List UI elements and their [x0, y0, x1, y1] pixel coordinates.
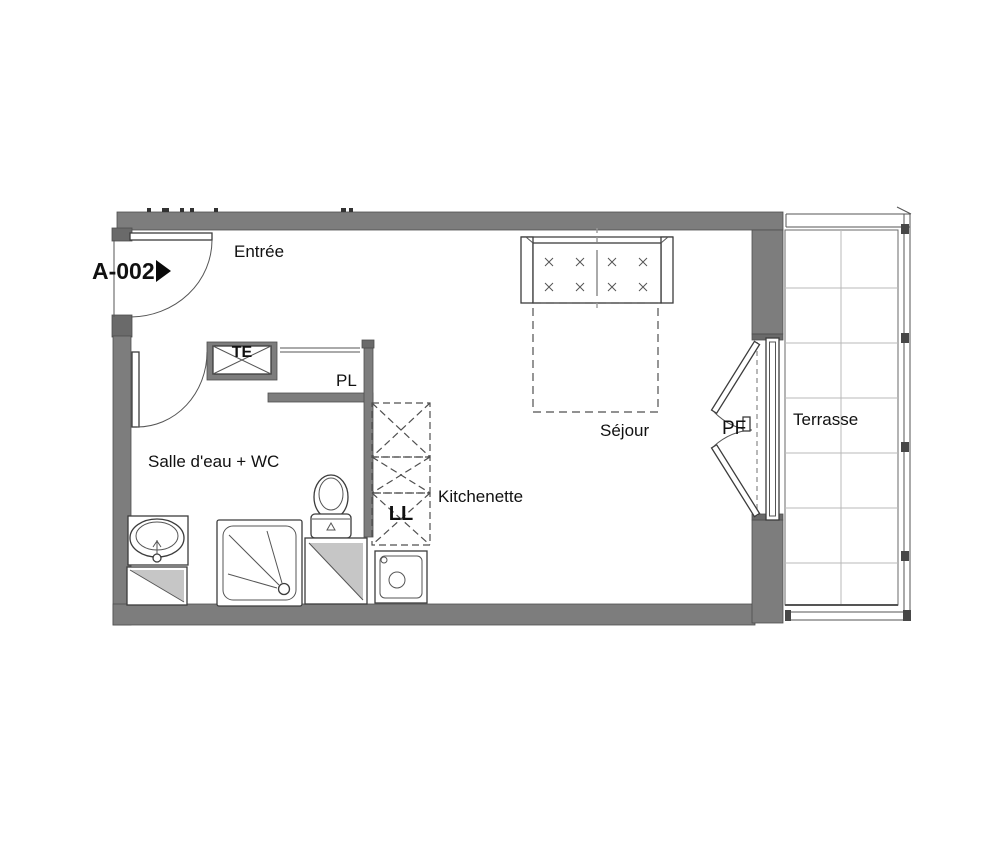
railing-post: [901, 224, 909, 234]
sofa-arm-left: [521, 237, 533, 303]
arrow-right-icon: [156, 260, 171, 282]
railing-post: [901, 333, 909, 343]
sofa: [521, 228, 673, 310]
toilet-tank: [311, 514, 351, 538]
kitchen-sink-outer: [375, 551, 427, 603]
bathroom-door-swing-arc: [137, 352, 207, 427]
closet-pl: [280, 348, 360, 352]
pf-leaf-lower: [712, 445, 760, 517]
floor-plan: A-002 Entrée TE PL Salle d'eau + WC LL K…: [0, 0, 1000, 857]
rug-dashed-outline: [533, 303, 658, 412]
closet-label-pl: PL: [336, 371, 357, 391]
window-label-pf: PF: [722, 418, 746, 440]
wall-bottom: [113, 604, 755, 625]
shower-tray-outer: [217, 520, 302, 606]
railing-bottom: [787, 612, 910, 620]
railing-endcap-left: [785, 610, 791, 621]
railing-post: [901, 442, 909, 452]
bathroom-door: [132, 352, 207, 427]
entry-door-jamb-bottom: [112, 315, 132, 337]
unit-box-1-cross: [372, 403, 430, 457]
entrance-door-leaf: [130, 233, 212, 240]
shower: [217, 520, 302, 606]
unit-box-2-cross: [372, 457, 430, 493]
wall-tick-marks: [147, 208, 353, 212]
room-label-salle-deau: Salle d'eau + WC: [148, 452, 279, 472]
wall-kitchen-cap: [362, 340, 374, 348]
bathroom-sink: [128, 516, 188, 565]
bathroom-door-leaf: [132, 352, 139, 427]
wall-top: [117, 212, 783, 230]
wall-closet-bottom: [268, 393, 373, 402]
room-label-entree: Entrée: [234, 242, 284, 262]
shaft-toilet: [305, 538, 367, 604]
kitchen-sink: [375, 551, 427, 603]
washer-label-ll: LL: [372, 503, 430, 526]
pf-leaf-upper: [712, 341, 760, 413]
wall-right-upper: [752, 230, 783, 334]
walls: [112, 208, 783, 625]
apartment-id-text: A-002: [92, 258, 155, 284]
pf-fixed-frame: [766, 338, 779, 520]
closet-front-lines: [280, 348, 360, 352]
fixture-label-te: TE: [213, 344, 271, 362]
wall-right-lower: [752, 520, 783, 623]
apartment-id-label: A-002: [92, 258, 171, 284]
room-label-terrasse: Terrasse: [793, 410, 858, 430]
entry-door-jamb-top: [112, 228, 132, 241]
shower-drain: [279, 584, 290, 595]
sink-drain: [153, 554, 161, 562]
sofa-arm-right: [661, 237, 673, 303]
railing-corner-tick: [897, 207, 911, 214]
room-label-sejour: Séjour: [600, 421, 649, 441]
railing-endcap-right: [903, 610, 911, 621]
toilet: [311, 475, 351, 538]
room-label-kitchenette: Kitchenette: [438, 487, 523, 507]
railing-post: [901, 551, 909, 561]
railing-top: [786, 214, 910, 227]
shaft-bottom-left: [127, 567, 187, 605]
